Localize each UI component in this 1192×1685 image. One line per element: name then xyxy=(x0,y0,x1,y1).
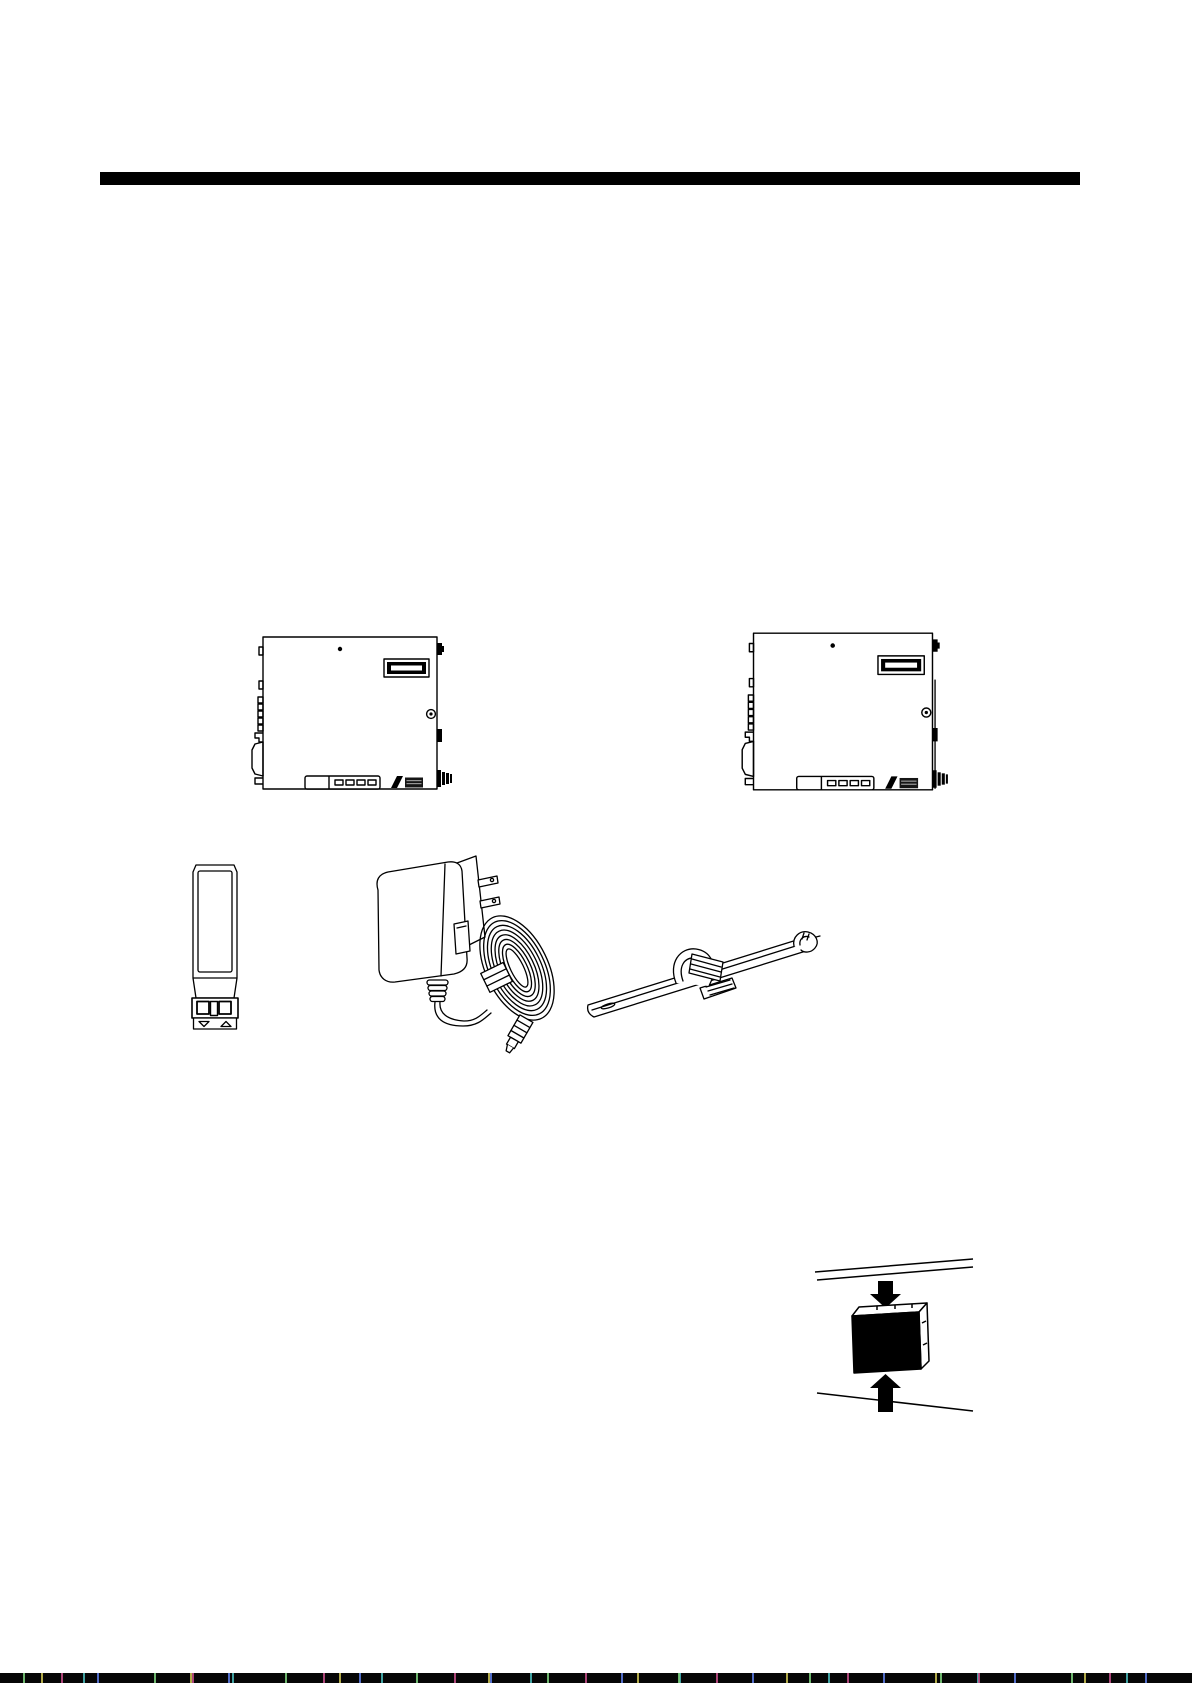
plug-prongs xyxy=(478,876,500,908)
side-clip xyxy=(454,921,470,954)
figure-device-left xyxy=(245,630,455,795)
sfp-drawing xyxy=(192,865,238,1029)
arrow-down-icon xyxy=(870,1281,901,1308)
coil-wrap-band xyxy=(481,962,513,992)
unit-box xyxy=(852,1303,929,1373)
insertion-drawing xyxy=(815,1259,973,1412)
adapter-drawing xyxy=(377,856,560,1055)
document-page xyxy=(0,0,1192,1685)
lc-duplex-connector xyxy=(192,998,238,1018)
arrow-up-icon xyxy=(870,1374,901,1412)
polarity-plate xyxy=(194,1018,237,1029)
strain-relief xyxy=(427,980,448,1002)
figure-insertion-diagram xyxy=(805,1255,975,1420)
chapter-divider-bar xyxy=(100,172,1080,185)
figure-cable-clamp xyxy=(580,925,825,1020)
lower-rail xyxy=(817,1393,973,1411)
scan-noise-strip xyxy=(0,1673,1192,1683)
sfp-body xyxy=(193,865,237,978)
figure-sfp-module xyxy=(185,858,245,1033)
upper-rail xyxy=(815,1259,973,1280)
adapter-body xyxy=(377,862,467,982)
sfp-shoulder xyxy=(193,978,237,998)
power-cord xyxy=(435,1002,491,1026)
barrel-plug xyxy=(501,1015,533,1055)
figure-device-right xyxy=(735,626,951,796)
figure-power-adapter xyxy=(345,810,560,1060)
clamp-drawing xyxy=(588,932,820,1017)
